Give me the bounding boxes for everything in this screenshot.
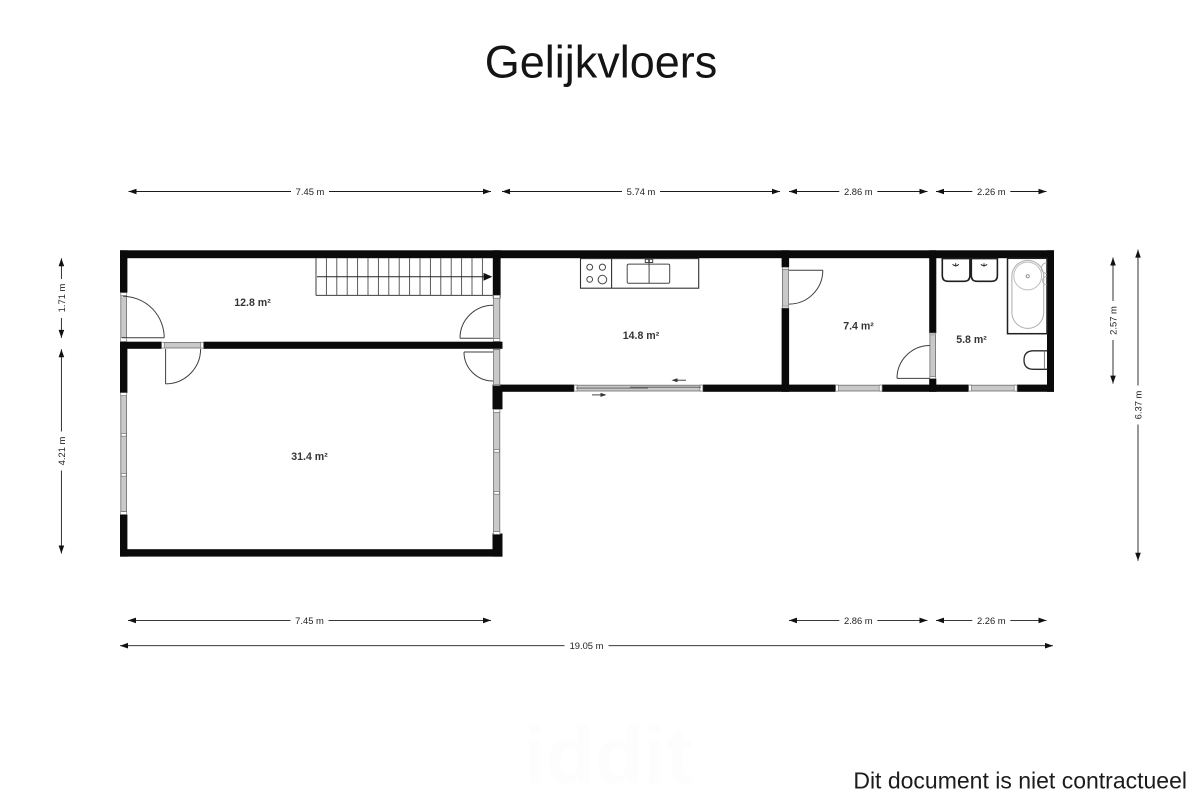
svg-text:2.26 m: 2.26 m: [977, 615, 1006, 626]
svg-text:5.74 m: 5.74 m: [627, 186, 656, 197]
svg-text:12.8 m²: 12.8 m²: [234, 297, 271, 309]
svg-text:4.21 m: 4.21 m: [56, 436, 67, 465]
svg-text:7.4 m²: 7.4 m²: [843, 321, 874, 333]
svg-text:19.05 m: 19.05 m: [570, 640, 604, 651]
svg-text:7.45 m: 7.45 m: [296, 186, 325, 197]
svg-text:7.45 m: 7.45 m: [295, 615, 324, 626]
svg-text:2.86 m: 2.86 m: [844, 615, 873, 626]
svg-text:2.26 m: 2.26 m: [977, 186, 1006, 197]
svg-text:1.71 m: 1.71 m: [56, 283, 67, 312]
svg-text:2.57 m: 2.57 m: [1108, 306, 1119, 335]
svg-text:14.8 m²: 14.8 m²: [623, 330, 660, 342]
svg-text:Gelijkvloers: Gelijkvloers: [485, 37, 718, 88]
svg-text:Dit document is niet contractu: Dit document is niet contractueel: [853, 768, 1187, 794]
svg-text:31.4 m²: 31.4 m²: [291, 451, 328, 463]
svg-text:2.86 m: 2.86 m: [844, 186, 873, 197]
svg-text:iddit: iddit: [524, 711, 693, 800]
svg-text:6.37 m: 6.37 m: [1133, 390, 1144, 419]
svg-text:5.8 m²: 5.8 m²: [956, 334, 987, 346]
